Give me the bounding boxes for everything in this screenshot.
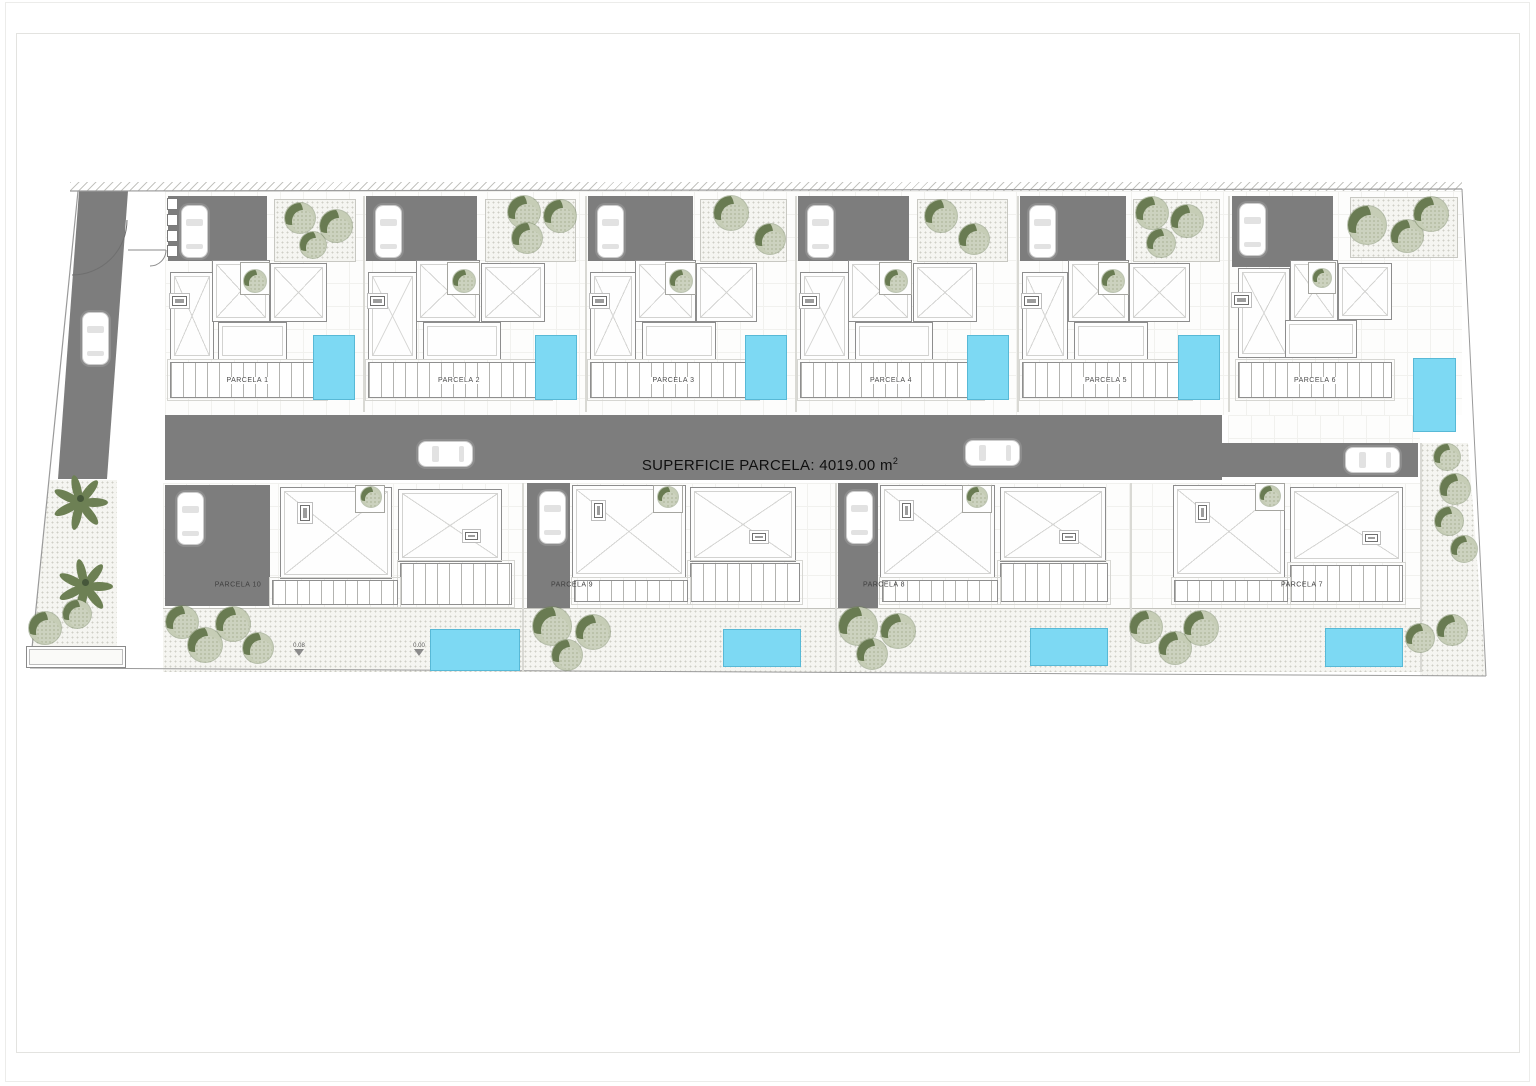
- tree: [512, 223, 542, 253]
- tree: [300, 232, 326, 258]
- skylight: [172, 296, 187, 306]
- skylight: [752, 533, 766, 541]
- car-window: [851, 505, 868, 512]
- parcel-separator: [363, 196, 365, 412]
- legend-box: [26, 646, 126, 668]
- car-window: [812, 219, 829, 226]
- superficie-text: SUPERFICIE PARCELA: 4019.00 m: [642, 457, 893, 474]
- tree: [576, 615, 610, 649]
- tree: [959, 224, 989, 254]
- tree: [285, 203, 315, 233]
- pool: [723, 629, 801, 667]
- villa-terrace: [855, 322, 933, 360]
- tree: [1451, 536, 1477, 562]
- skylight: [465, 532, 478, 540]
- parcel-label: PARCELA 7: [1281, 582, 1323, 589]
- tree: [1147, 229, 1175, 257]
- villa-roof: [398, 489, 502, 562]
- car: [846, 491, 873, 544]
- pool: [430, 629, 520, 671]
- car: [1345, 447, 1400, 473]
- car-window: [812, 244, 829, 249]
- car-window: [1244, 217, 1261, 224]
- tree: [1440, 474, 1470, 504]
- pool: [313, 335, 355, 400]
- tree: [1130, 611, 1162, 643]
- car-window: [1034, 219, 1051, 226]
- tree: [1136, 197, 1168, 229]
- villa-roof: [1000, 487, 1106, 562]
- villa-roof: [1290, 487, 1403, 563]
- villa-terrace: [1285, 320, 1357, 358]
- car: [181, 205, 208, 258]
- villa-roof: [1129, 263, 1190, 322]
- tree: [552, 640, 582, 670]
- pergola-deck: PARCELA 4: [800, 362, 982, 398]
- villa-roof: [1238, 268, 1290, 358]
- pergola-deck: [1000, 563, 1108, 602]
- tree: [755, 224, 785, 254]
- level-value: 0.00: [406, 643, 432, 649]
- tree: [1406, 624, 1434, 652]
- car-window: [544, 530, 561, 535]
- skylight: [802, 296, 817, 306]
- tree: [714, 196, 748, 230]
- level-value: 0.08: [286, 643, 312, 649]
- fence-post: [167, 245, 178, 257]
- car-window: [544, 505, 561, 512]
- skylight: [370, 296, 385, 306]
- parcel-separator: [795, 196, 797, 412]
- skylight: [1365, 534, 1378, 542]
- tree: [881, 614, 915, 648]
- car-window: [380, 244, 397, 249]
- skylight: [1062, 533, 1076, 541]
- palm-tree: [56, 474, 104, 522]
- car-window: [851, 530, 868, 535]
- car: [1029, 205, 1056, 258]
- parcel-label: PARCELA 8: [863, 582, 905, 589]
- parcel-separator: [1228, 196, 1230, 412]
- car-window: [1359, 452, 1366, 468]
- tree: [1260, 486, 1280, 506]
- car: [539, 491, 566, 544]
- villa-roof: [696, 263, 757, 322]
- skylight: [300, 505, 310, 521]
- parcel-label: PARCELA 2: [435, 377, 483, 384]
- tree: [544, 200, 576, 232]
- tree: [1437, 615, 1467, 645]
- car: [82, 312, 109, 365]
- pool: [745, 335, 787, 400]
- pergola-deck: PARCELA 1: [170, 362, 325, 398]
- parcel-label: PARCELA 9: [551, 582, 593, 589]
- tree: [1171, 205, 1203, 237]
- villa-roof: [1022, 272, 1068, 360]
- skylight: [594, 503, 603, 518]
- parcel-separator: [1130, 483, 1132, 672]
- parcel-separator: [835, 483, 837, 672]
- tree: [925, 200, 957, 232]
- car: [177, 492, 204, 545]
- villa-roof: [170, 272, 214, 360]
- villa-roof: [481, 263, 545, 322]
- villa-roof: [913, 263, 977, 322]
- villa-roof: [1338, 263, 1392, 320]
- door-swing-arc: [150, 250, 166, 266]
- tree: [1348, 206, 1386, 244]
- car: [807, 205, 834, 258]
- fence-post: [167, 214, 178, 226]
- site-boundary-hatch: [70, 182, 1462, 191]
- pergola-deck: [1174, 580, 1288, 602]
- parcel-label: PARCELA 5: [1082, 377, 1130, 384]
- car-window: [1386, 452, 1391, 468]
- level-arrow-icon: [414, 649, 424, 656]
- tree: [658, 487, 678, 507]
- parcel-label: PARCELA 1: [223, 377, 271, 384]
- villa-roof: [368, 272, 417, 360]
- parcel-separator: [522, 483, 524, 672]
- pool: [1030, 628, 1108, 666]
- villa-terrace: [218, 322, 287, 360]
- tree: [453, 270, 475, 292]
- pergola-deck: [400, 563, 512, 605]
- parcel-label: PARCELA 4: [867, 377, 915, 384]
- drawing-sheet: SUPERFICIE PARCELA: 4019.00 m2 0.08 0.00…: [0, 0, 1536, 1086]
- car: [965, 440, 1020, 466]
- car-window: [182, 531, 199, 536]
- fence-post: [167, 198, 178, 210]
- pool: [535, 335, 577, 400]
- pergola-deck: PARCELA 3: [590, 362, 757, 398]
- tree: [1434, 444, 1460, 470]
- tree: [243, 633, 273, 663]
- parcel-label: PARCELA 6: [1291, 377, 1339, 384]
- tree: [1313, 269, 1331, 287]
- car-window: [602, 244, 619, 249]
- pergola-deck: PARCELA 2: [368, 362, 550, 398]
- car-window: [186, 219, 203, 226]
- car-window: [186, 244, 203, 249]
- tree: [29, 612, 61, 644]
- palm-trunk: [77, 495, 84, 502]
- tree: [967, 487, 987, 507]
- car-window: [979, 445, 986, 461]
- car-window: [380, 219, 397, 226]
- skylight: [1234, 295, 1249, 305]
- level-marker: 0.00: [406, 643, 432, 656]
- tree: [320, 210, 352, 242]
- villa-roof: [690, 487, 796, 562]
- road-area-label: SUPERFICIE PARCELA: 4019.00 m2: [560, 452, 980, 470]
- car-window: [1244, 242, 1261, 247]
- pool: [1325, 628, 1403, 667]
- villa-roof: [590, 272, 636, 360]
- parcel-separator: [585, 196, 587, 412]
- villa-terrace: [642, 322, 716, 360]
- pergola-deck: PARCELA 6: [1238, 362, 1392, 398]
- car: [418, 441, 473, 467]
- tree: [1435, 507, 1463, 535]
- skylight: [592, 296, 607, 306]
- tree: [857, 639, 887, 669]
- parcel-label: PARCELA 10: [215, 582, 262, 589]
- car-window: [1034, 244, 1051, 249]
- villa-terrace: [1074, 322, 1148, 360]
- level-arrow-icon: [294, 649, 304, 656]
- car-window: [87, 326, 104, 333]
- car-window: [1006, 445, 1011, 461]
- tree: [188, 628, 222, 662]
- pool: [1178, 335, 1220, 400]
- car-window: [459, 446, 464, 462]
- villa-terrace: [423, 322, 501, 360]
- tree: [1414, 197, 1448, 231]
- parcel-separator: [1017, 196, 1019, 412]
- tree: [1184, 611, 1218, 645]
- parcel-label: PARCELA 3: [649, 377, 697, 384]
- palm-tree: [61, 558, 109, 606]
- skylight: [1024, 296, 1039, 306]
- tree: [885, 270, 907, 292]
- tree: [1102, 270, 1124, 292]
- parcel6-ground: [1228, 415, 1420, 443]
- car-window: [602, 219, 619, 226]
- superficie-sup: 2: [893, 456, 898, 466]
- tree: [63, 600, 91, 628]
- pool: [967, 335, 1009, 400]
- car-window: [87, 351, 104, 356]
- tree: [244, 270, 266, 292]
- tree: [670, 270, 692, 292]
- pergola-deck: [272, 580, 398, 605]
- fence-post: [167, 230, 178, 242]
- tree: [361, 487, 381, 507]
- car-window: [182, 506, 199, 513]
- car-window: [432, 446, 439, 462]
- villa-roof: [270, 263, 327, 322]
- pergola-deck: PARCELA 5: [1022, 362, 1190, 398]
- pool: [1413, 358, 1456, 432]
- skylight: [902, 503, 911, 518]
- villa-roof: [800, 272, 849, 360]
- level-marker: 0.08: [286, 643, 312, 656]
- site-plan: SUPERFICIE PARCELA: 4019.00 m2 0.08 0.00…: [0, 0, 1536, 1086]
- car: [1239, 203, 1266, 256]
- palm-trunk: [82, 579, 89, 586]
- skylight: [1198, 505, 1207, 520]
- car: [597, 205, 624, 258]
- car: [375, 205, 402, 258]
- pergola-deck: [690, 563, 800, 602]
